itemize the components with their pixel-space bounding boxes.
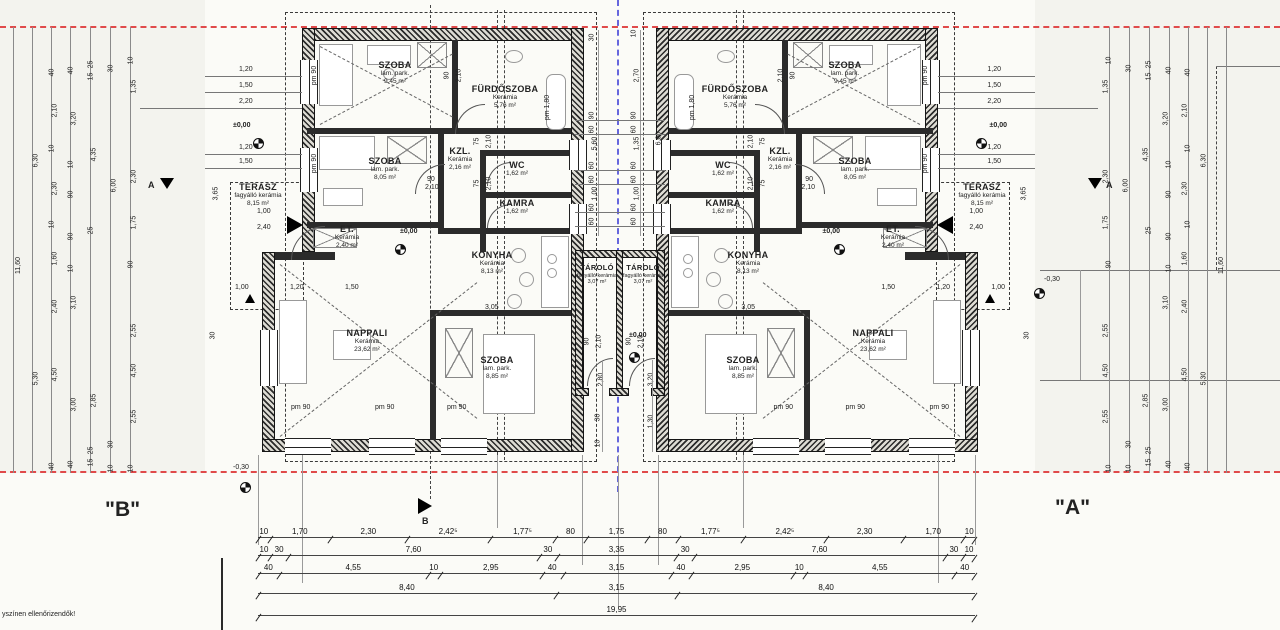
room-name: FÜRDŐSZOBA (460, 84, 550, 94)
dim-label: 60 (588, 176, 595, 184)
room-name: SZOBA (340, 156, 430, 166)
dim-label: 90 (127, 261, 134, 269)
corridor-door-gap (569, 140, 587, 170)
approach-level: ±0,00 (990, 122, 1007, 129)
dim-label: 90 (1106, 261, 1113, 269)
room-area: 8,13 m² (703, 268, 793, 275)
dim-label: 25 (1146, 447, 1153, 455)
door-dim: 2,10 (455, 69, 462, 83)
washbasin (717, 50, 735, 63)
room-furdoszoba: FÜRDŐSZOBA Kerámia 5,76 m² (460, 84, 550, 109)
dim-label: 10 (594, 440, 601, 448)
door-dim: 90 (443, 72, 450, 80)
mid-dim-line (652, 360, 653, 452)
nappali-dim: 1,00 (991, 284, 1005, 291)
room-finish: lam. park. (698, 365, 788, 372)
mid-dim-line (640, 30, 641, 236)
approach-dim: 1,20 (987, 66, 1001, 73)
room-name: FÜRDŐSZOBA (690, 84, 780, 94)
dim-label: 15 (1146, 459, 1153, 467)
dim-column: 402,10102,30101,602,404,5040 (51, 27, 66, 473)
dim-label: 6,00 (110, 179, 117, 193)
wall-stores-bottom (609, 388, 629, 396)
level-mark: ±0,00 (823, 228, 840, 235)
extension-line (497, 455, 498, 528)
window (909, 438, 955, 455)
section-label: A (148, 180, 155, 190)
approach-dim: 1,20 (239, 144, 253, 151)
room-name: SZOBA (810, 156, 900, 166)
corridor-dim-line (575, 170, 665, 171)
desk (323, 188, 363, 206)
bed (319, 44, 353, 106)
plot-line-right-v (1080, 270, 1081, 380)
mid-dim-line (598, 30, 599, 236)
door-dim: 2,10 (425, 184, 439, 191)
window-label: pm 90 (774, 404, 793, 411)
room-finish: lam. park. (810, 166, 900, 173)
dim-column: 25154,35252,852515 (90, 27, 105, 473)
dim-label: 6,00 (1123, 179, 1130, 193)
dim-label: 60 (630, 218, 637, 226)
dim-label: 2,55 (130, 324, 137, 338)
dim-segment: 2,95 (440, 562, 542, 574)
room-et: ET. Kerámia 2,40 m² (863, 224, 923, 249)
room-area: 2,16 m² (430, 164, 490, 171)
dim-label: 40 (48, 69, 55, 77)
room-area: 8,13 m² (447, 268, 537, 275)
dim-label: 40 (67, 461, 74, 469)
room-area: 5,76 m² (460, 102, 550, 109)
dim-label: 90 (67, 233, 74, 241)
dim-segment: 10 (963, 544, 975, 556)
benchmark-icon (253, 138, 264, 149)
dimension-columns-left: 11,60 6,305,30 402,10102,30101,602,404,5… (0, 27, 140, 473)
stool (507, 294, 522, 309)
wall-top (302, 28, 584, 41)
dim-label: 40 (1166, 461, 1173, 469)
dim-segment: 10 (963, 526, 975, 538)
window-label: pm 90 (311, 66, 318, 85)
room-area: 9,45 m² (800, 78, 890, 85)
level-mark: ±0,00 (400, 228, 417, 235)
mid-dim-column: 2,803010 (598, 0, 612, 460)
terasz-dim: 3,65 (1021, 187, 1028, 201)
nappali-dim: 1,20 (290, 284, 304, 291)
dim-label: 60 (588, 162, 595, 170)
door-dim: 2,10 (485, 177, 492, 191)
window-label: pm 90 (846, 404, 865, 411)
room-name: NAPPALI (828, 328, 918, 338)
window-label: pm 90 (375, 404, 394, 411)
dim-label: 25 (1146, 61, 1153, 69)
section-label: B (422, 516, 429, 526)
entrance-arrow-icon (937, 216, 953, 234)
extension-line (743, 455, 744, 528)
corridor-dim-line (575, 226, 665, 227)
approach-line (938, 76, 1035, 77)
dim-label: 2,80 (597, 373, 604, 387)
room-finish: fagyálló kerámia (573, 273, 621, 279)
dim-label: 40 (48, 463, 55, 471)
dim-label: 4,50 (130, 364, 137, 378)
unit-a-title: "A" (1055, 496, 1090, 520)
room-area: 9,45 m² (350, 78, 440, 85)
terasz-dim: 1,00 (257, 208, 271, 215)
dim-column: 11,60 (1212, 27, 1227, 473)
approach-level: ±0,00 (233, 122, 250, 129)
dim-label: 10 (48, 221, 55, 229)
step-arrow-icon (245, 294, 255, 303)
dim-label: 60 (588, 218, 595, 226)
dim-column: 402,10102,30101,602,404,5040 (1174, 27, 1189, 473)
dim-label: 4,50 (1103, 364, 1110, 378)
dim-segment: 40 (542, 562, 563, 574)
dim-segment: 40 (671, 562, 692, 574)
door-dim: 2,10 (748, 135, 755, 149)
terasz-dim: 2,40 (257, 224, 271, 231)
window (260, 330, 278, 386)
room-area: 8,15 m² (939, 200, 1025, 207)
room-area: 8,85 m² (452, 373, 542, 380)
room-tarolo-left: TÁROLÓ fagyálló kerámia 3,07 m² (573, 264, 621, 285)
benchmark-icon (240, 482, 251, 493)
dim-label: 2,40 (51, 300, 58, 314)
room-terasz: TERASZ fagyálló kerámia 8,15 m² (215, 182, 301, 207)
room-finish: Kerámia (690, 94, 780, 101)
dim-label: 10 (1185, 145, 1192, 153)
room-szoba-mid: SZOBA lam. park. 8,05 m² (340, 156, 430, 181)
dim-label: 30 (107, 65, 114, 73)
dim-label: 3,10 (1163, 296, 1170, 310)
room-kzl: KZL. Kerámia 2,16 m² (750, 146, 810, 171)
door-dim: 75 (760, 138, 767, 146)
section-label: A (1106, 180, 1113, 190)
dim-label: 25 (87, 227, 94, 235)
room-name: WC (693, 160, 753, 170)
extension-line (975, 455, 976, 545)
dim-column: 101,352,301,75902,554,502,5510 (1095, 27, 1110, 473)
dim-column: 25154,35252,852515 (1135, 27, 1150, 473)
section-arrow-icon (160, 178, 174, 189)
room-area: 2,40 m² (317, 242, 377, 249)
level-minus-left: -0,30 (233, 464, 249, 471)
section-arrow-icon (418, 498, 432, 514)
dim-segment: 3,15 (556, 582, 677, 594)
dim-label: 40 (1185, 463, 1192, 471)
approach-line (938, 108, 1035, 109)
corridor-dim-line (575, 134, 665, 135)
wall-top (656, 28, 938, 41)
nappali-dim: 1,20 (936, 284, 950, 291)
room-konyha: KONYHA Kerámia 8,13 m² (447, 250, 537, 275)
dim-label: 3,20 (647, 373, 654, 387)
dim-segment: 30 (270, 544, 288, 556)
dim-segment: 2,42⁵ (743, 526, 826, 538)
dim-label: 1,30 (647, 415, 654, 429)
dim-label: 10 (1166, 265, 1173, 273)
dim-segment: 1,70 (903, 526, 964, 538)
room-finish: fagyálló kerámia (215, 192, 301, 199)
dim-segment: 2,42⁵ (407, 526, 490, 538)
room-area: 8,05 m² (810, 174, 900, 181)
dim-label: 1,35 (130, 80, 137, 94)
approach-line (205, 168, 302, 169)
washbasin (505, 50, 523, 63)
room-name: WC (487, 160, 547, 170)
desk (877, 188, 917, 206)
room-kamra: KAMRA 1,62 m² (693, 198, 753, 216)
unit-a-plan: SZOBA lam. park. 9,45 m² FÜRDŐSZOBA Kerá… (643, 12, 1035, 462)
room-name: TERASZ (215, 182, 301, 192)
sofa (279, 300, 307, 384)
dim-label: 6,30 (1201, 154, 1208, 168)
room-name: TERASZ (939, 182, 1025, 192)
room-area: 1,62 m² (693, 170, 753, 177)
window-label: pm 90 (447, 404, 466, 411)
dim-label: 2,10 (51, 104, 58, 118)
dim-column: 101,352,301,75902,554,502,5510 (130, 27, 145, 473)
dim-column: 306,003010 (1115, 27, 1130, 473)
dim-label: 11,60 (1218, 257, 1225, 274)
sink (683, 254, 693, 264)
dim-label: 25 (87, 447, 94, 455)
dim-segment: 80 (647, 526, 677, 538)
dim-label: 1,60 (51, 252, 58, 266)
room-szoba-top: SZOBA lam. park. 9,45 m² (350, 60, 440, 85)
dim-label: 40 (1166, 67, 1173, 75)
sink (683, 268, 693, 278)
wall-konyha-szoba (430, 310, 571, 316)
dim-label: 10 (1185, 221, 1192, 229)
dim-label: 2,30 (51, 182, 58, 196)
room-area: 1,62 m² (693, 208, 753, 215)
dim-label: 10 (1106, 57, 1113, 65)
dim-label: 30 (588, 34, 595, 42)
dim-label: 15 (1146, 73, 1153, 81)
door-dim: 2,10 (778, 69, 785, 83)
window (369, 438, 415, 455)
room-name: KONYHA (703, 250, 793, 260)
stool (718, 294, 733, 309)
window (753, 438, 799, 455)
entrance-arrow-icon (287, 216, 303, 234)
approach-line (205, 92, 302, 93)
dim-label: 2,85 (90, 394, 97, 408)
level-minus-right: -0,30 (1044, 276, 1060, 283)
dim-label: 40 (1185, 69, 1192, 77)
room-name: TÁROLÓ (573, 264, 621, 273)
room-finish: fagyálló kerámia (939, 192, 1025, 199)
room-name: ET. (863, 224, 923, 234)
window (441, 438, 487, 455)
room-name: KZL. (430, 146, 490, 156)
room-name: SZOBA (800, 60, 890, 70)
dim-label: 90 (1166, 233, 1173, 241)
mid-dim-column: 3,201,30 (648, 0, 662, 460)
dim-segment: 3,35 (557, 544, 676, 556)
room-finish: Kerámia (430, 156, 490, 163)
dim-label: 2,30 (1182, 182, 1189, 196)
approach-dim: 2,20 (987, 98, 1001, 105)
room-et: ET. Kerámia 2,40 m² (317, 224, 377, 249)
room-finish: lam. park. (452, 365, 542, 372)
window (962, 330, 980, 386)
dim-label: 10 (127, 465, 134, 473)
dim-label: 15 (87, 73, 94, 81)
approach-line (938, 154, 1035, 155)
room-name: SZOBA (698, 355, 788, 365)
room-konyha: KONYHA Kerámia 8,13 m² (703, 250, 793, 275)
dim-segment: 19,95 (258, 604, 975, 616)
dim-label: 90 (67, 191, 74, 199)
dim-segment: 10 (258, 526, 270, 538)
room-area: 5,76 m² (690, 102, 780, 109)
dim-label: 60 (588, 204, 595, 212)
dim-label: 11,60 (15, 257, 22, 274)
dim-label: 2,55 (130, 410, 137, 424)
tub-label: pm 1,80 (544, 95, 551, 120)
dim-segment: 3,15 (563, 562, 671, 574)
dim-label: 4,35 (90, 148, 97, 162)
dim-segment: 1,77⁵ (490, 526, 556, 538)
dim-label: 15 (87, 459, 94, 467)
dim-label: 3,10 (70, 296, 77, 310)
window-label: pm 90 (930, 404, 949, 411)
dim-label: 10 (630, 30, 637, 38)
room-wc: WC 1,62 m² (693, 160, 753, 178)
door-dim: 2,10 (801, 184, 815, 191)
door-dim: 2,10 (485, 135, 492, 149)
room-name: SZOBA (452, 355, 542, 365)
room-nappali: NAPPALI Kerámia 23,62 m² (828, 328, 918, 353)
terasz-dim: 2,40 (969, 224, 983, 231)
dim-segment: 2,30 (330, 526, 406, 538)
sofa (933, 300, 961, 384)
dim-label: 60 (630, 126, 637, 134)
nappali-dim: 1,00 (235, 284, 249, 291)
corridor-dim-line (575, 184, 665, 185)
dim-segment: 2,30 (826, 526, 902, 538)
dim-label: 1,35 (1103, 80, 1110, 94)
dim-column: 306,003010 (110, 27, 125, 473)
dim-column: 403,20109090103,103,0040 (70, 27, 85, 473)
wall-nappali-szoba (804, 310, 810, 440)
wall-stores-bottom (575, 388, 589, 396)
dim-label: 30 (594, 414, 601, 422)
dim-column: 403,20109090103,103,0040 (1155, 27, 1170, 473)
dim-label: 3,20 (70, 112, 77, 126)
nappali-dim: 1,50 (881, 284, 895, 291)
approach-dim: 2,20 (239, 98, 253, 105)
dim-segment: 10 (258, 544, 270, 556)
dim-label: 10 (67, 265, 74, 273)
approach-line (205, 154, 302, 155)
room-area: 8,15 m² (215, 200, 301, 207)
dim-segment: 8,40 (677, 582, 975, 594)
dim-segment: 2,95 (691, 562, 793, 574)
floorplan-sheet: { "sheet": { "unit_b_label": "\"B\"", "u… (0, 0, 1280, 630)
room-area: 8,85 m² (698, 373, 788, 380)
room-name: NAPPALI (322, 328, 412, 338)
dim-label: 10 (1106, 465, 1113, 473)
approach-dim: 1,50 (987, 82, 1001, 89)
konyha-opening-dim: 3,05 (485, 304, 499, 311)
room-kzl: KZL. Kerámia 2,16 m² (430, 146, 490, 171)
dim-label: 90 (630, 112, 637, 120)
dim-label: 6,30 (32, 154, 39, 168)
dim-label: 2,30 (130, 170, 137, 184)
approach-line (938, 168, 1035, 169)
room-furdoszoba: FÜRDŐSZOBA Kerámia 5,76 m² (690, 84, 780, 109)
wall-kamra-konyha (438, 228, 571, 234)
terasz-dim: 30 (1024, 332, 1031, 340)
dim-segment: 40 (258, 562, 279, 574)
wall-furdo-wc (669, 150, 760, 156)
dim-label: 2,55 (1103, 324, 1110, 338)
room-area: 2,40 m² (863, 242, 923, 249)
dim-label: 10 (67, 161, 74, 169)
room-finish: lam. park. (340, 166, 430, 173)
dim-column: 6,305,30 (1193, 27, 1208, 473)
room-area: 1,62 m² (487, 170, 547, 177)
approach-dim: 1,50 (987, 158, 1001, 165)
dim-label: 10 (48, 145, 55, 153)
room-name: KZL. (750, 146, 810, 156)
unit-b-plan: SZOBA lam. park. 9,45 m² FÜRDŐSZOBA Kerá… (205, 12, 597, 462)
door-dim: 2,10 (748, 177, 755, 191)
dim-label: 4,35 (1143, 148, 1150, 162)
step-arrow-icon (985, 294, 995, 303)
dim-label: 4,50 (51, 368, 58, 382)
dim-label: 3,00 (1163, 398, 1170, 412)
room-szoba-bottom: SZOBA lam. park. 8,85 m² (452, 355, 542, 380)
window (285, 438, 331, 455)
nappali-dim: 1,50 (345, 284, 359, 291)
dim-label: 2,85 (1143, 394, 1150, 408)
dim-segment: 10 (793, 562, 805, 574)
benchmark-icon (629, 352, 640, 363)
room-finish: Kerámia (317, 234, 377, 241)
room-szoba-bottom: SZOBA lam. park. 8,85 m² (698, 355, 788, 380)
dim-label: 2,55 (1103, 410, 1110, 424)
room-area: 2,16 m² (750, 164, 810, 171)
wall-kamra-konyha (669, 228, 802, 234)
dim-row-4: 8,403,158,40 (258, 582, 975, 594)
room-finish: Kerámia (828, 338, 918, 345)
room-finish: Kerámia (460, 94, 550, 101)
approach-dim: 1,50 (239, 158, 253, 165)
dim-label: 10 (1166, 161, 1173, 169)
terasz-dim: 30 (209, 332, 216, 340)
plot-boundary-bottom (0, 471, 1280, 473)
door-dim: 75 (473, 180, 480, 188)
approach-line (205, 108, 302, 109)
dim-label: 25 (1146, 227, 1153, 235)
dim-row-2: 10307,60303,35307,603010 (258, 544, 975, 556)
corridor-dim-line (575, 212, 665, 213)
dim-label: 30 (1126, 441, 1133, 449)
room-name: ET. (317, 224, 377, 234)
door-dim: 75 (760, 180, 767, 188)
dim-segment: 80 (555, 526, 585, 538)
sheet-note: yszínen ellenőrizendők! (2, 611, 75, 618)
wall-nappali-szoba (430, 310, 436, 440)
dim-label: 60 (588, 126, 595, 134)
room-nappali: NAPPALI Kerámia 23,62 m² (322, 328, 412, 353)
dim-segment: 10 (428, 562, 440, 574)
window (825, 438, 871, 455)
